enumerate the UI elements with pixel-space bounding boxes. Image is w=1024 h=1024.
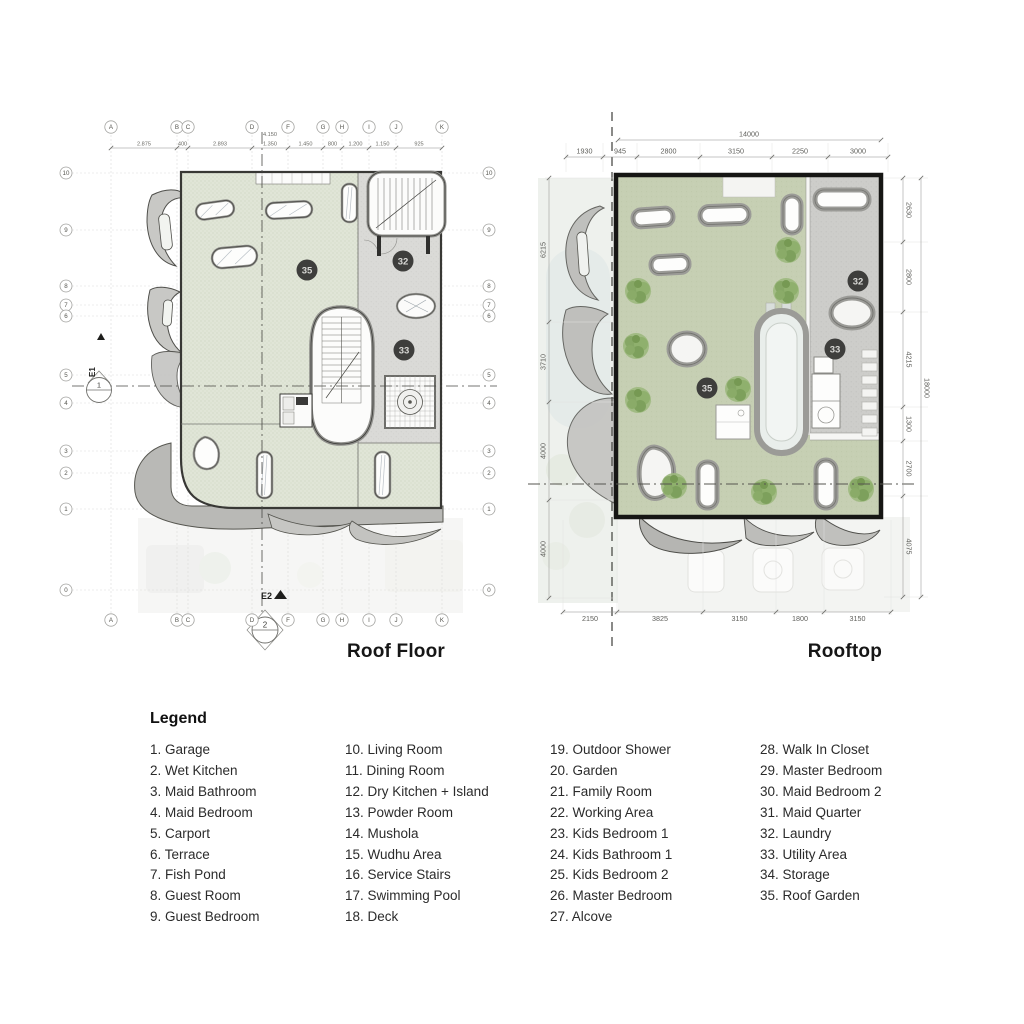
tree-icon	[661, 473, 687, 499]
legend-item: 15. Wudhu Area	[345, 845, 489, 866]
section-marker-2: 2	[263, 621, 268, 630]
overall-dimension-label: 4.150	[263, 132, 277, 138]
legend-item: 3. Maid Bathroom	[150, 782, 260, 803]
legend-column-1: 1. Garage2. Wet Kitchen3. Maid Bathroom4…	[150, 740, 260, 928]
grid-row-label: 7	[487, 302, 491, 309]
legend-item: 21. Family Room	[550, 782, 672, 803]
section-marker-e1: E1	[88, 367, 97, 377]
room-marker-number: 33	[830, 344, 841, 355]
grid-row-label: 7	[64, 302, 68, 309]
grid-column-label: D	[250, 617, 255, 624]
dimension-label: 3150	[850, 614, 866, 623]
legend-item: 10. Living Room	[345, 740, 489, 761]
overall-dimension-label: 14000	[739, 130, 759, 139]
grid-column-label: B	[175, 124, 179, 131]
dimension-label: 3150	[728, 147, 744, 156]
skylight-blob	[815, 190, 869, 209]
legend-item: 20. Garden	[550, 761, 672, 782]
legend-item: 17. Swimming Pool	[345, 886, 489, 907]
dimension-label: 3150	[732, 614, 748, 623]
grid-row-label: 10	[63, 170, 70, 177]
room-marker-number: 35	[302, 265, 313, 276]
dimension-label: 4000	[539, 541, 548, 557]
grid-column-label: F	[286, 124, 290, 131]
legend-item: 29. Master Bedroom	[760, 761, 882, 782]
room-marker-number: 32	[853, 276, 864, 287]
grid-column-label: C	[186, 617, 191, 624]
grid-row-label: 6	[64, 313, 68, 320]
tree-icon	[775, 237, 801, 263]
dimension-label: 4215	[905, 352, 914, 368]
room-marker-number: 35	[702, 383, 713, 394]
legend-item: 27. Alcove	[550, 907, 672, 928]
section-marker-1: 1	[97, 381, 101, 390]
tree-icon	[848, 476, 874, 502]
legend-item: 16. Service Stairs	[345, 865, 489, 886]
grid-row-label: 4	[487, 400, 491, 407]
legend-item: 11. Dining Room	[345, 761, 489, 782]
dimension-label: 400	[178, 142, 187, 148]
room-marker-number: 33	[399, 345, 410, 356]
grid-row-label: 2	[487, 470, 491, 477]
legend-item: 26. Master Bedroom	[550, 886, 672, 907]
grid-row-label: 9	[487, 227, 491, 234]
grid-row-label: 0	[64, 587, 68, 594]
legend-item: 13. Powder Room	[345, 803, 489, 824]
dimension-label: 2800	[905, 269, 914, 285]
legend-item: 34. Storage	[760, 865, 882, 886]
legend-columns: 1. Garage2. Wet Kitchen3. Maid Bathroom4…	[150, 740, 980, 940]
legend-column-4: 28. Walk In Closet29. Master Bedroom30. …	[760, 740, 882, 907]
grid-column-label: I	[368, 617, 370, 624]
legend-item: 5. Carport	[150, 824, 260, 845]
legend-item: 9. Guest Bedroom	[150, 907, 260, 928]
legend-item: 7. Fish Pond	[150, 865, 260, 886]
grid-column-label: C	[186, 124, 191, 131]
skylight-blob	[651, 255, 690, 274]
dimension-label: 925	[414, 142, 423, 148]
legend-item: 24. Kids Bathroom 1	[550, 845, 672, 866]
legend-item: 33. Utility Area	[760, 845, 882, 866]
grid-column-label: J	[394, 124, 397, 131]
grid-column-label: H	[340, 617, 344, 624]
legend-item: 4. Maid Bedroom	[150, 803, 260, 824]
grid-row-label: 10	[486, 170, 493, 177]
legend-item: 22. Working Area	[550, 803, 672, 824]
grid-row-label: 1	[487, 506, 491, 513]
room-marker-number: 32	[398, 256, 409, 267]
legend: Legend 1. Garage2. Wet Kitchen3. Maid Ba…	[150, 710, 980, 940]
grid-row-label: 5	[64, 372, 68, 379]
skylight-blob	[266, 201, 313, 219]
dimension-label: 945	[614, 147, 626, 156]
grid-row-label: 5	[487, 372, 491, 379]
legend-item: 2. Wet Kitchen	[150, 761, 260, 782]
legend-column-3: 19. Outdoor Shower20. Garden21. Family R…	[550, 740, 672, 928]
grid-column-label: D	[250, 124, 255, 131]
skylight-blob	[698, 462, 717, 508]
grid-column-label: G	[321, 124, 326, 131]
legend-title: Legend	[150, 710, 980, 728]
tree-icon	[725, 376, 751, 402]
legend-item: 12. Dry Kitchen + Island	[345, 782, 489, 803]
grid-row-label: 8	[487, 283, 491, 290]
dimension-label: 4075	[905, 539, 914, 555]
tree-icon	[751, 479, 777, 505]
grid-row-label: 2	[64, 470, 68, 477]
rooftop-plan-drawing: 1400019309452800315022503000621537104000…	[520, 100, 940, 660]
legend-item: 14. Mushola	[345, 824, 489, 845]
dimension-label: 1.450	[299, 142, 313, 148]
legend-item: 1. Garage	[150, 740, 260, 761]
tree-icon	[625, 278, 651, 304]
dimension-label: 1300	[905, 416, 914, 432]
legend-item: 8. Guest Room	[150, 886, 260, 907]
dimension-label: 1930	[577, 147, 593, 156]
grid-row-label: 3	[487, 448, 491, 455]
grid-row-label: 0	[487, 587, 491, 594]
grid-row-label: 9	[64, 227, 68, 234]
main-stair-core	[311, 307, 373, 444]
dimension-label: 2800	[661, 147, 677, 156]
legend-column-2: 10. Living Room11. Dining Room12. Dry Ki…	[345, 740, 489, 928]
rooftop-title: Rooftop	[737, 641, 882, 663]
legend-item: 19. Outdoor Shower	[550, 740, 672, 761]
pergola-grid-fixture	[385, 376, 435, 428]
roof-floor-plan-drawing: 2.8754002.8931.3501.4508001.2001.1509254…	[55, 100, 505, 660]
overall-dimension-label: 18000	[923, 378, 932, 398]
dimension-label: 2250	[792, 147, 808, 156]
tree-icon	[623, 333, 649, 359]
dimension-label: 2630	[905, 202, 914, 218]
grid-row-label: 6	[487, 313, 491, 320]
dimension-label: 2.875	[137, 142, 151, 148]
legend-item: 23. Kids Bedroom 1	[550, 824, 672, 845]
legend-item: 30. Maid Bedroom 2	[760, 782, 882, 803]
skylight-blob	[700, 205, 750, 225]
legend-item: 35. Roof Garden	[760, 886, 882, 907]
dimension-label: 2.893	[213, 142, 227, 148]
dimension-strings: 2.8754002.8931.3501.4508001.2001.1509254…	[109, 132, 444, 150]
grid-column-label: H	[340, 124, 344, 131]
skylight-blob	[783, 196, 801, 233]
legend-item: 6. Terrace	[150, 845, 260, 866]
dimension-label: 3825	[652, 614, 668, 623]
legend-item: 18. Deck	[345, 907, 489, 928]
grid-row-label: 1	[64, 506, 68, 513]
dimension-label: 1800	[792, 614, 808, 623]
grid-column-label: J	[394, 617, 397, 624]
tree-icon	[625, 387, 651, 413]
grid-column-label: I	[368, 124, 370, 131]
roof-floor-title: Roof Floor	[300, 641, 445, 663]
grid-column-label: B	[175, 617, 179, 624]
dimension-label: 1.200	[349, 142, 363, 148]
legend-item: 25. Kids Bedroom 2	[550, 865, 672, 886]
floor-plan-sheet: { "plans": { "roof_floor": { "title": "R…	[0, 0, 1024, 1024]
dimension-label: 2150	[582, 614, 598, 623]
section-marker-e2: E2	[261, 591, 272, 601]
grid-column-label: F	[286, 617, 290, 624]
dimension-label: 800	[328, 142, 337, 148]
dimension-label: 1.350	[263, 142, 277, 148]
dimension-label: 1.150	[376, 142, 390, 148]
dimension-label: 3000	[850, 147, 866, 156]
tree-icon	[773, 278, 799, 304]
legend-item: 28. Walk In Closet	[760, 740, 882, 761]
grid-row-label: 3	[64, 448, 68, 455]
dimension-label: 2700	[905, 461, 914, 477]
grid-row-label: 8	[64, 283, 68, 290]
dimension-label: 6215	[539, 242, 548, 258]
legend-item: 32. Laundry	[760, 824, 882, 845]
dimension-label: 3710	[539, 354, 548, 370]
grid-row-label: 4	[64, 400, 68, 407]
dimension-label: 4000	[539, 443, 548, 459]
legend-item: 31. Maid Quarter	[760, 803, 882, 824]
grid-column-label: G	[321, 617, 326, 624]
pool-skylight	[757, 303, 806, 453]
